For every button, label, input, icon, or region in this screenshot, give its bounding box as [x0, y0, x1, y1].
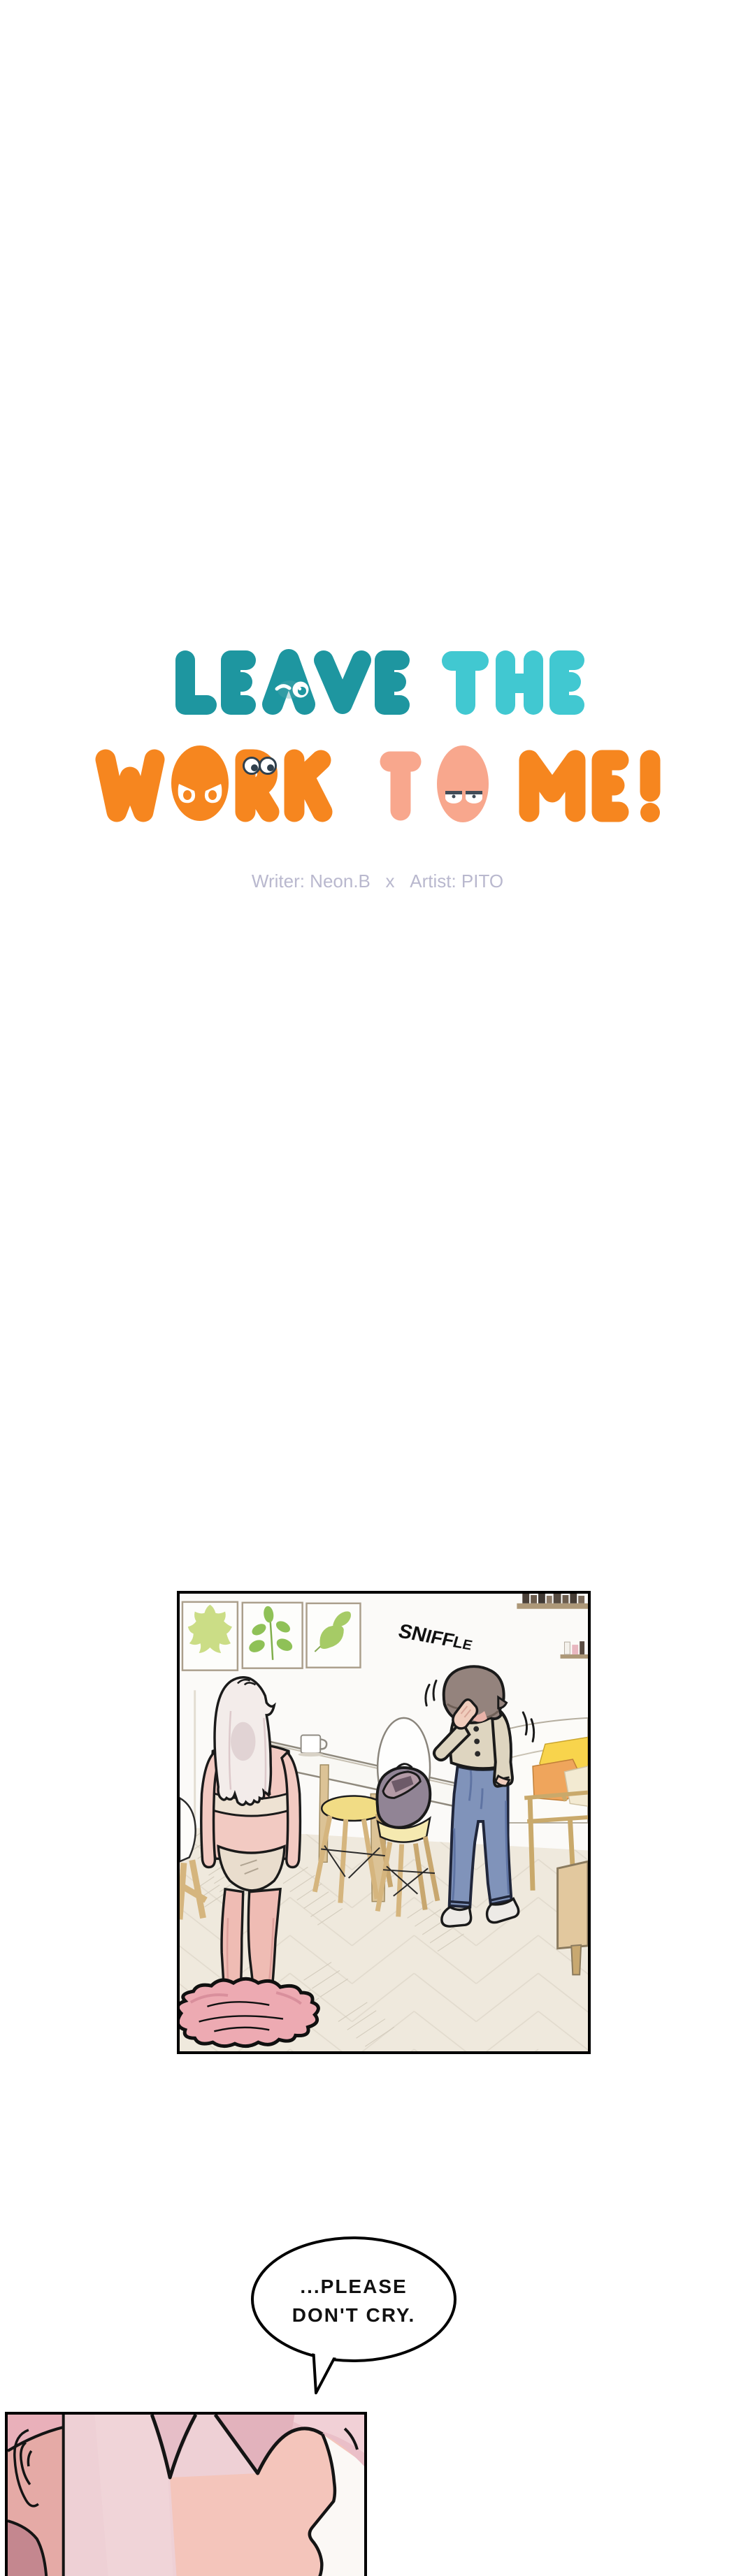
svg-text:...PLEASE: ...PLEASE [300, 2276, 407, 2297]
svg-text:DON'T CRY.: DON'T CRY. [292, 2304, 416, 2326]
